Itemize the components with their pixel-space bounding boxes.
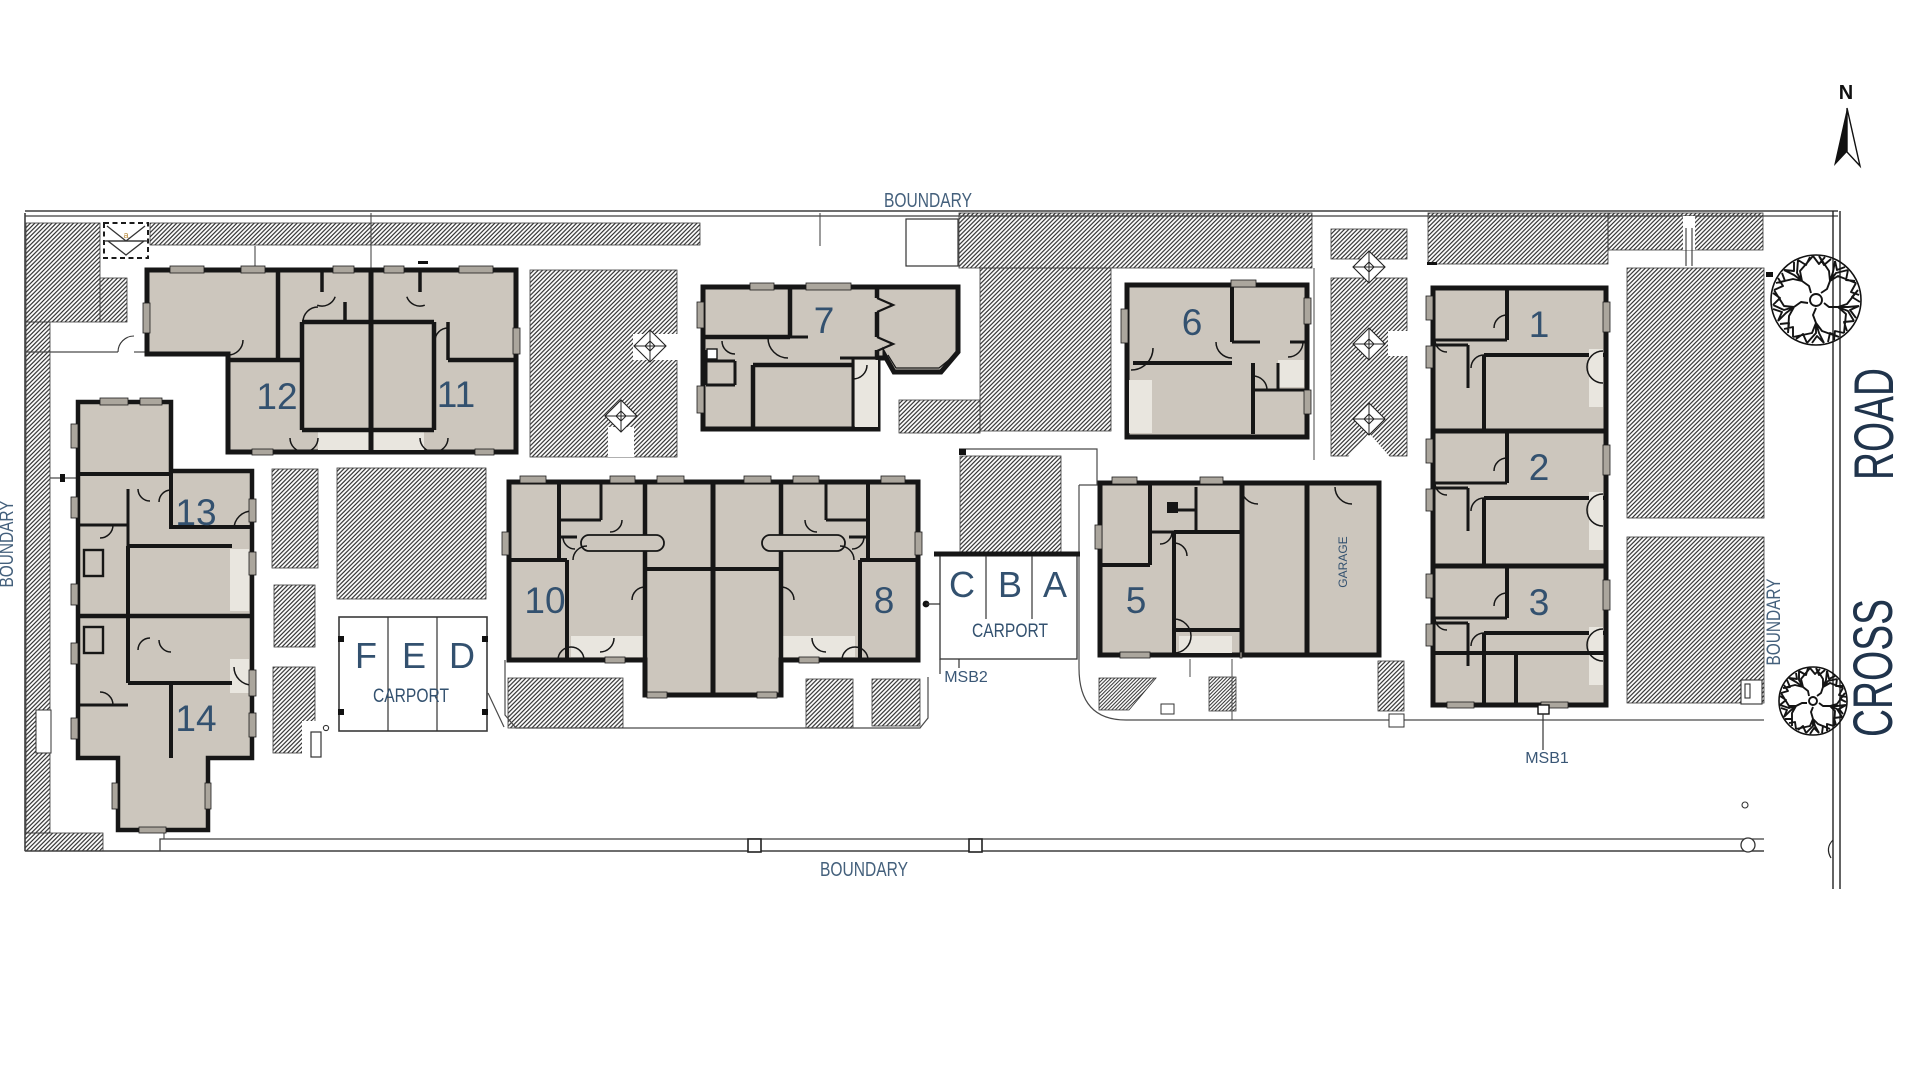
svg-text:CARPORT: CARPORT [972, 620, 1048, 642]
svg-text:CROSS: CROSS [1841, 599, 1904, 737]
svg-text:B: B [998, 564, 1022, 605]
svg-text:8: 8 [874, 580, 895, 621]
svg-text:BOUNDARY: BOUNDARY [1764, 578, 1785, 665]
svg-text:BOUNDARY: BOUNDARY [820, 859, 908, 881]
svg-text:14: 14 [175, 698, 216, 739]
svg-text:2: 2 [1529, 447, 1550, 488]
svg-text:MSB2: MSB2 [944, 669, 988, 686]
svg-text:a: a [123, 230, 128, 240]
svg-text:12: 12 [256, 376, 297, 417]
svg-text:N: N [1839, 82, 1853, 104]
svg-text:C: C [949, 564, 975, 605]
svg-text:CARPORT: CARPORT [373, 685, 449, 707]
svg-text:ROAD: ROAD [1842, 368, 1905, 480]
svg-text:BOUNDARY: BOUNDARY [884, 190, 972, 212]
svg-text:A: A [1043, 564, 1067, 605]
svg-text:5: 5 [1126, 580, 1147, 621]
svg-text:13: 13 [175, 492, 216, 533]
svg-text:11: 11 [437, 374, 475, 415]
svg-text:BOUNDARY: BOUNDARY [0, 500, 18, 587]
svg-text:D: D [449, 635, 475, 676]
svg-text:MSB1: MSB1 [1525, 750, 1569, 767]
svg-text:1: 1 [1529, 304, 1550, 345]
svg-text:7: 7 [814, 300, 835, 341]
svg-text:GARAGE: GARAGE [1336, 536, 1350, 587]
svg-text:10: 10 [524, 580, 565, 621]
svg-text:E: E [402, 635, 426, 676]
svg-text:6: 6 [1182, 302, 1203, 343]
svg-text:F: F [355, 635, 377, 676]
svg-text:3: 3 [1529, 582, 1550, 623]
